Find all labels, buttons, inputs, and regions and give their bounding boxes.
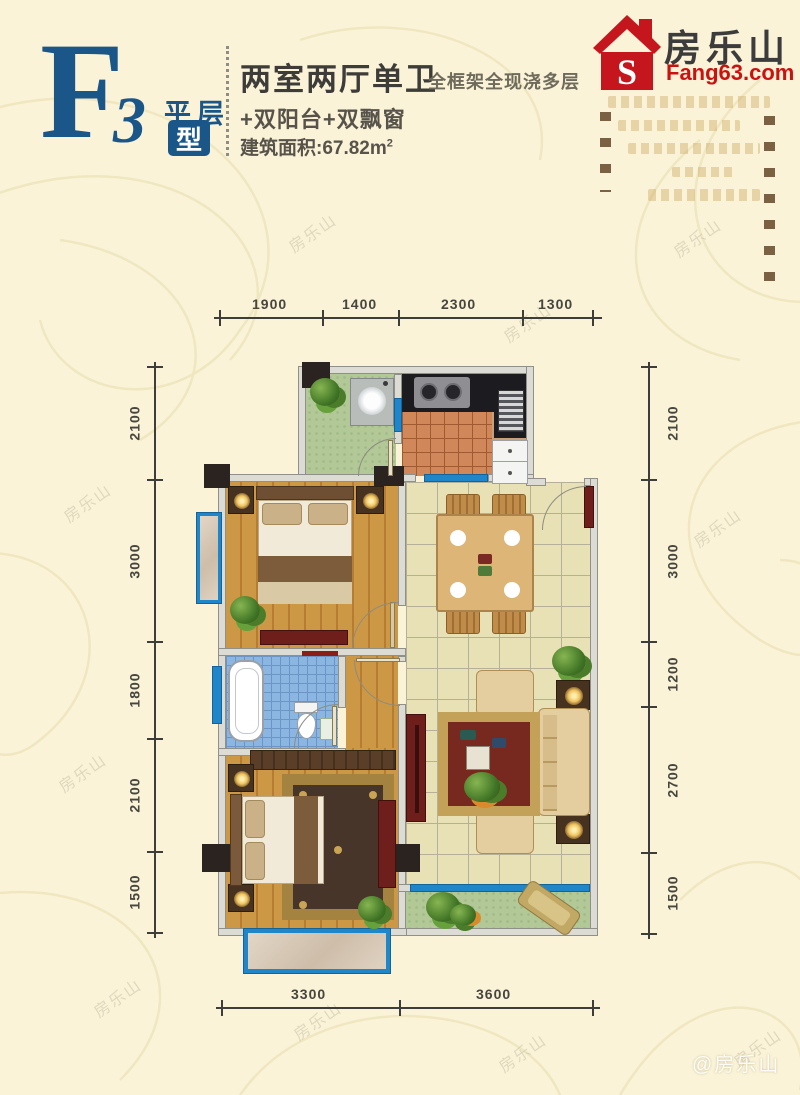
sofa-single [476,670,534,716]
dim-label: 1400 [342,296,377,312]
header-divider [226,46,229,156]
plates [450,530,466,546]
flower-arrangement [464,772,500,802]
sofa-main [538,708,590,816]
lamp [565,821,583,839]
dim-tick [641,479,657,481]
dim-line-bottom [216,1007,600,1009]
dim-tick [641,933,657,935]
bed-bedroom2 [256,486,354,604]
dim-label: 1200 [665,656,681,691]
pillow [308,503,348,525]
dim-label: 2300 [441,296,476,312]
lamp [234,771,250,787]
dim-label: 3600 [476,986,511,1002]
plan-code-letter: F [40,22,124,160]
kitchen-window [394,398,402,432]
cabinet-handle [508,449,512,453]
dining-chair [446,610,480,634]
coffee-table [466,746,490,770]
nightstand [228,884,254,912]
sofa-cushions [543,715,557,811]
page-title: 两室两厅单卫 [240,54,438,99]
dim-tick [641,706,657,708]
table-centerpiece [478,554,492,564]
dim-tick [147,366,163,368]
plan-tag-boxed: 型 [168,120,210,156]
dim-tick [522,310,524,326]
burner [420,383,438,401]
plant [552,646,586,676]
wall-master-living [398,704,406,936]
bay-window-sill [200,516,218,600]
stamp-row [618,120,740,131]
svg-text:S: S [617,52,637,92]
dim-tick [322,310,324,326]
washer-drum [358,387,386,415]
pillow [245,842,265,880]
column [204,464,230,488]
nightstand [228,486,254,514]
tv-screen-line [415,725,419,813]
side-table [556,814,590,844]
dim-tick [147,738,163,740]
bathroom-window [212,666,222,724]
dim-line-top [214,317,602,319]
flowering-plant [450,904,476,926]
dim-tick [398,310,400,326]
blanket [294,796,318,884]
wall-bedroom2-dining [398,482,406,606]
washing-machine [350,378,394,426]
plant [230,596,260,624]
lamp [234,493,250,509]
dim-tick [641,641,657,643]
wall-bathroom-right [338,656,346,708]
burner [444,383,462,401]
rug-decor [492,738,506,748]
stamp-right-column [764,116,775,284]
bathtub-inner [235,668,259,734]
bedroom2-bay-window [196,512,222,604]
watermark-text: 房乐山 [58,477,116,528]
watermark-text: 房乐山 [88,972,146,1023]
watermark-text: 房乐山 [493,1027,551,1078]
dim-tick [147,932,163,934]
bed-foot [258,582,352,604]
headboard [230,794,242,886]
structure-note: 全框架全现浇多层 [428,68,580,94]
rug-decor [460,730,476,740]
dim-label: 1500 [665,875,681,910]
dim-tick [641,366,657,368]
living-balcony-window [410,884,590,892]
blanket [258,556,352,582]
towel-bar [302,651,338,656]
feature-subtitle: +双阳台+双飘窗 [240,102,406,134]
living-rug [438,712,540,816]
watermark-text: 房乐山 [283,207,341,258]
bay-window-sill [248,933,386,969]
side-table [556,680,590,710]
cabinet-divider [493,461,527,462]
watermark-text: 房乐山 [668,212,726,263]
pillow [262,503,302,525]
dim-label: 3000 [127,543,143,578]
master-bay-window [243,928,391,974]
nightstand [228,764,254,792]
kitchen-pass-sill [424,474,488,482]
kitchen-sink [498,390,524,432]
cabinet-handle [508,471,512,475]
dim-tick [147,641,163,643]
stamp-left-column [600,112,611,192]
wardrobe [250,750,396,770]
dim-tick [221,1000,223,1016]
house-logo-icon: S [592,12,662,92]
dim-label: 1300 [538,296,573,312]
plant [358,896,386,922]
stamp-row [672,167,734,177]
stamp-row [608,96,770,108]
column [392,844,420,872]
bathtub [228,660,264,742]
dim-label: 1800 [127,672,143,707]
page: 房乐山 房乐山 房乐山 房乐山 房乐山 房乐山 房乐山 房乐山 房乐山 房乐山 … [0,0,800,1095]
stamp-row [648,189,760,201]
dim-label: 2100 [127,777,143,812]
nightstand [356,486,384,514]
wall-right [590,478,598,936]
dim-tick [592,1000,594,1016]
watermark-text: 房乐山 [288,995,346,1046]
dim-tick [641,852,657,854]
tv-cabinet-living [406,714,426,822]
bed-master [230,794,324,886]
kitchen-cabinet [492,440,528,484]
plant [310,378,340,406]
dim-tick [399,1000,401,1016]
area-label: 建筑面积:67.82m [240,138,387,159]
building-area: 建筑面积:67.82m2 [240,133,393,160]
pillow [245,800,265,838]
dim-label: 2100 [127,405,143,440]
credit-watermark: @房乐山 [692,1048,780,1077]
dining-chair [492,610,526,634]
lamp [565,687,583,705]
tv-cabinet-master [378,800,396,888]
lamp [363,493,379,509]
watermark-text: 房乐山 [688,502,746,553]
kitchen-floor [402,410,492,476]
dim-label: 3000 [665,543,681,578]
dim-label: 2100 [665,405,681,440]
dim-label: 1900 [252,296,287,312]
washer-knob [383,381,388,386]
plan-code-number: 3 [113,88,146,154]
watermark-text: 房乐山 [53,747,111,798]
headboard [256,486,354,500]
dim-label: 1500 [127,874,143,909]
dining-table [436,514,534,612]
area-superscript: 2 [387,138,393,150]
dim-tick [219,310,221,326]
wall-top [298,366,534,374]
dim-tick [592,310,594,326]
stamp-row [628,143,760,154]
dim-label: 2700 [665,762,681,797]
stove [414,377,470,408]
dim-tick [147,851,163,853]
dim-label: 3300 [291,986,326,1002]
dim-tick [147,479,163,481]
wall-entry-left [526,478,546,486]
tv-stand-bedroom2 [260,630,348,645]
brand-domain: Fang63.com [666,60,794,86]
lamp [234,891,250,907]
